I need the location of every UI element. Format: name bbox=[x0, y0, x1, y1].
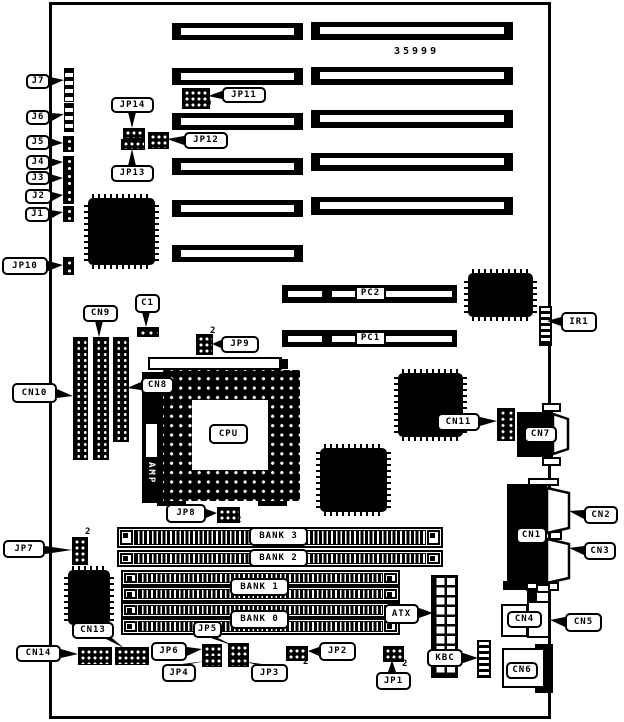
header-jp10 bbox=[63, 257, 74, 275]
isa-slot-segment bbox=[311, 22, 513, 40]
label-j5: J5 bbox=[26, 135, 50, 150]
label-j6: J6 bbox=[26, 110, 50, 125]
label-j3: J3 bbox=[26, 171, 50, 185]
chip bbox=[68, 570, 110, 625]
isa-slot-segment bbox=[311, 110, 513, 128]
label-cpu: CPU bbox=[209, 424, 248, 444]
header-cn11 bbox=[497, 408, 515, 441]
header-cn13 bbox=[115, 647, 149, 665]
label-cn6: CN6 bbox=[506, 662, 538, 679]
label-jp5: JP5 bbox=[193, 621, 222, 638]
cpu-retainer-notch bbox=[279, 359, 288, 369]
label-bank1: BANK 1 bbox=[230, 578, 289, 596]
label-c1: C1 bbox=[135, 294, 160, 313]
label-bank0: BANK 0 bbox=[230, 610, 289, 629]
header-j4 bbox=[63, 156, 74, 172]
cn7-mount-tab bbox=[542, 403, 561, 412]
label-cn1: CN1 bbox=[516, 527, 547, 544]
header-jp3 bbox=[228, 656, 249, 667]
label-j7: J7 bbox=[26, 74, 50, 89]
header-kbc bbox=[477, 640, 491, 678]
header-j2 bbox=[63, 187, 74, 204]
label-jp6: JP6 bbox=[151, 642, 187, 661]
isa-slot-segment bbox=[311, 197, 513, 215]
label-jp3: JP3 bbox=[251, 664, 288, 682]
header-j1 bbox=[63, 206, 74, 222]
callout-tail-cn5 bbox=[550, 617, 565, 627]
board-number: 35999 bbox=[394, 46, 439, 57]
chip bbox=[320, 448, 387, 512]
pin-marker-jp7: 2 bbox=[85, 527, 90, 537]
label-pc1: PC1 bbox=[355, 331, 386, 346]
label-bank3: BANK 3 bbox=[249, 527, 308, 546]
label-j1: J1 bbox=[25, 207, 50, 222]
isa-slot-segment bbox=[172, 158, 303, 175]
amp-socket-window bbox=[146, 424, 157, 457]
label-cn11: CN11 bbox=[437, 413, 480, 431]
connector-cn10-strip bbox=[73, 337, 88, 460]
label-jp10: JP10 bbox=[2, 257, 48, 275]
label-jp13: JP13 bbox=[111, 165, 154, 182]
label-kbc: KBC bbox=[427, 649, 463, 667]
pin-marker-jp9: 2 bbox=[210, 326, 215, 336]
label-cn3: CN3 bbox=[584, 542, 616, 560]
header-jp12 bbox=[148, 132, 169, 149]
label-bank2: BANK 2 bbox=[249, 549, 308, 567]
pin-marker-jp1: 2 bbox=[402, 659, 407, 669]
pin-marker-jp2: 2 bbox=[303, 657, 308, 667]
isa-slot-segment bbox=[172, 113, 303, 130]
header-ir1 bbox=[539, 306, 552, 346]
label-j2: J2 bbox=[25, 189, 52, 204]
label-cn4: CN4 bbox=[507, 611, 542, 628]
connector-cn8-strip bbox=[113, 337, 129, 442]
label-ir1: IR1 bbox=[561, 312, 597, 332]
label-jp1: JP1 bbox=[376, 672, 411, 690]
header-jp1 bbox=[383, 646, 404, 662]
label-atx: ATX bbox=[384, 604, 419, 624]
isa-slot-segment bbox=[311, 153, 513, 171]
label-cn7: CN7 bbox=[524, 426, 557, 443]
header-jp14 bbox=[123, 128, 145, 139]
header-jp7 bbox=[72, 537, 88, 565]
label-jp4: JP4 bbox=[162, 664, 196, 682]
label-cn2: CN2 bbox=[584, 506, 618, 524]
label-jp9: JP9 bbox=[221, 336, 259, 353]
amp-socket-label: AMP bbox=[146, 462, 156, 484]
label-j4: J4 bbox=[26, 155, 50, 170]
chip bbox=[88, 198, 155, 265]
header-j3 bbox=[63, 171, 74, 187]
header-jp5 bbox=[228, 643, 249, 657]
header-cn14 bbox=[78, 647, 112, 665]
label-cn13: CN13 bbox=[72, 622, 114, 639]
motherboard-layout-diagram: 35999 AMP bbox=[0, 0, 624, 722]
label-jp14: JP14 bbox=[111, 97, 154, 113]
label-pc2: PC2 bbox=[355, 286, 386, 301]
header-jp13 bbox=[121, 139, 145, 150]
header-j6 bbox=[64, 103, 74, 132]
pin-marker-jp11: 9 bbox=[206, 99, 211, 109]
label-jp2: JP2 bbox=[319, 642, 356, 661]
cn1-mount-tab bbox=[549, 531, 562, 540]
isa-slot-segment bbox=[172, 200, 303, 217]
isa-slot-segment bbox=[172, 245, 303, 262]
callout-tail-cn3 bbox=[569, 546, 584, 555]
label-cn8: CN8 bbox=[141, 377, 174, 394]
cpu-retainer-bar bbox=[148, 357, 282, 370]
cn7-mount-tab bbox=[542, 457, 561, 466]
isa-slot-segment bbox=[311, 67, 513, 85]
header-j7 bbox=[64, 68, 74, 102]
cn5-tab bbox=[536, 584, 550, 593]
callout-tail-cn2 bbox=[569, 510, 584, 519]
label-cn9: CN9 bbox=[83, 305, 118, 322]
label-cn10: CN10 bbox=[12, 383, 57, 403]
isa-slot-segment bbox=[172, 68, 303, 85]
connector-cn9-strip bbox=[93, 337, 109, 460]
label-jp11: JP11 bbox=[222, 87, 266, 103]
isa-slot-segment bbox=[172, 23, 303, 40]
chip bbox=[468, 273, 533, 317]
header-jp4 bbox=[202, 656, 222, 667]
label-cn14: CN14 bbox=[16, 645, 61, 662]
label-cn5: CN5 bbox=[565, 613, 602, 632]
socket-foot bbox=[258, 501, 287, 506]
pin-marker-jp8: 2 bbox=[236, 515, 241, 525]
component-c1 bbox=[137, 327, 159, 337]
label-jp8: JP8 bbox=[166, 504, 206, 523]
label-jp7: JP7 bbox=[3, 540, 45, 558]
header-jp9 bbox=[196, 334, 213, 355]
header-j5 bbox=[63, 136, 74, 152]
label-jp12: JP12 bbox=[184, 132, 228, 149]
